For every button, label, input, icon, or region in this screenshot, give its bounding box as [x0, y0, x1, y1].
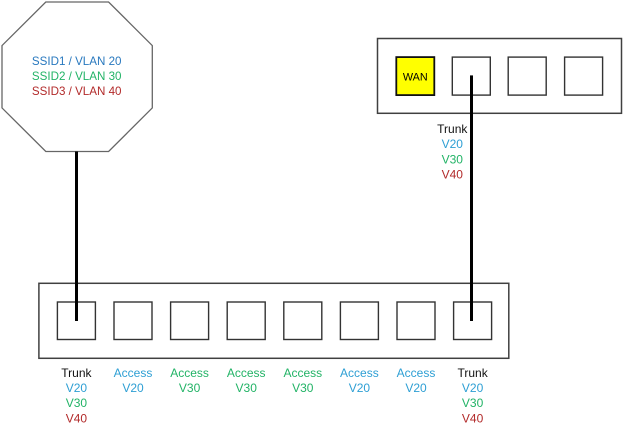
svg-text:V20: V20 — [349, 381, 371, 395]
svg-text:V40: V40 — [462, 411, 484, 425]
svg-text:Trunk: Trunk — [437, 122, 468, 136]
svg-text:V30: V30 — [66, 396, 88, 410]
svg-text:V40: V40 — [66, 411, 88, 425]
svg-text:WAN: WAN — [403, 71, 428, 83]
svg-text:V30: V30 — [179, 381, 201, 395]
svg-text:V20: V20 — [462, 381, 484, 395]
svg-text:V40: V40 — [442, 167, 464, 181]
svg-text:V20: V20 — [66, 381, 88, 395]
svg-text:Trunk: Trunk — [61, 366, 92, 380]
svg-text:SSID1 / VLAN 20: SSID1 / VLAN 20 — [32, 55, 122, 68]
svg-text:V30: V30 — [236, 381, 258, 395]
svg-text:SSID2 / VLAN 30: SSID2 / VLAN 30 — [32, 70, 122, 83]
svg-text:SSID3 / VLAN 40: SSID3 / VLAN 40 — [32, 85, 122, 98]
svg-text:V30: V30 — [442, 152, 464, 166]
svg-text:Access: Access — [114, 366, 153, 380]
svg-text:Access: Access — [170, 366, 209, 380]
svg-text:V20: V20 — [122, 381, 144, 395]
svg-text:V30: V30 — [462, 396, 484, 410]
svg-text:Access: Access — [227, 366, 266, 380]
svg-text:Access: Access — [340, 366, 379, 380]
svg-text:V20: V20 — [405, 381, 427, 395]
svg-text:V20: V20 — [442, 137, 464, 151]
svg-text:Access: Access — [397, 366, 436, 380]
svg-text:Access: Access — [283, 366, 322, 380]
svg-text:Trunk: Trunk — [457, 366, 488, 380]
svg-text:V30: V30 — [292, 381, 314, 395]
